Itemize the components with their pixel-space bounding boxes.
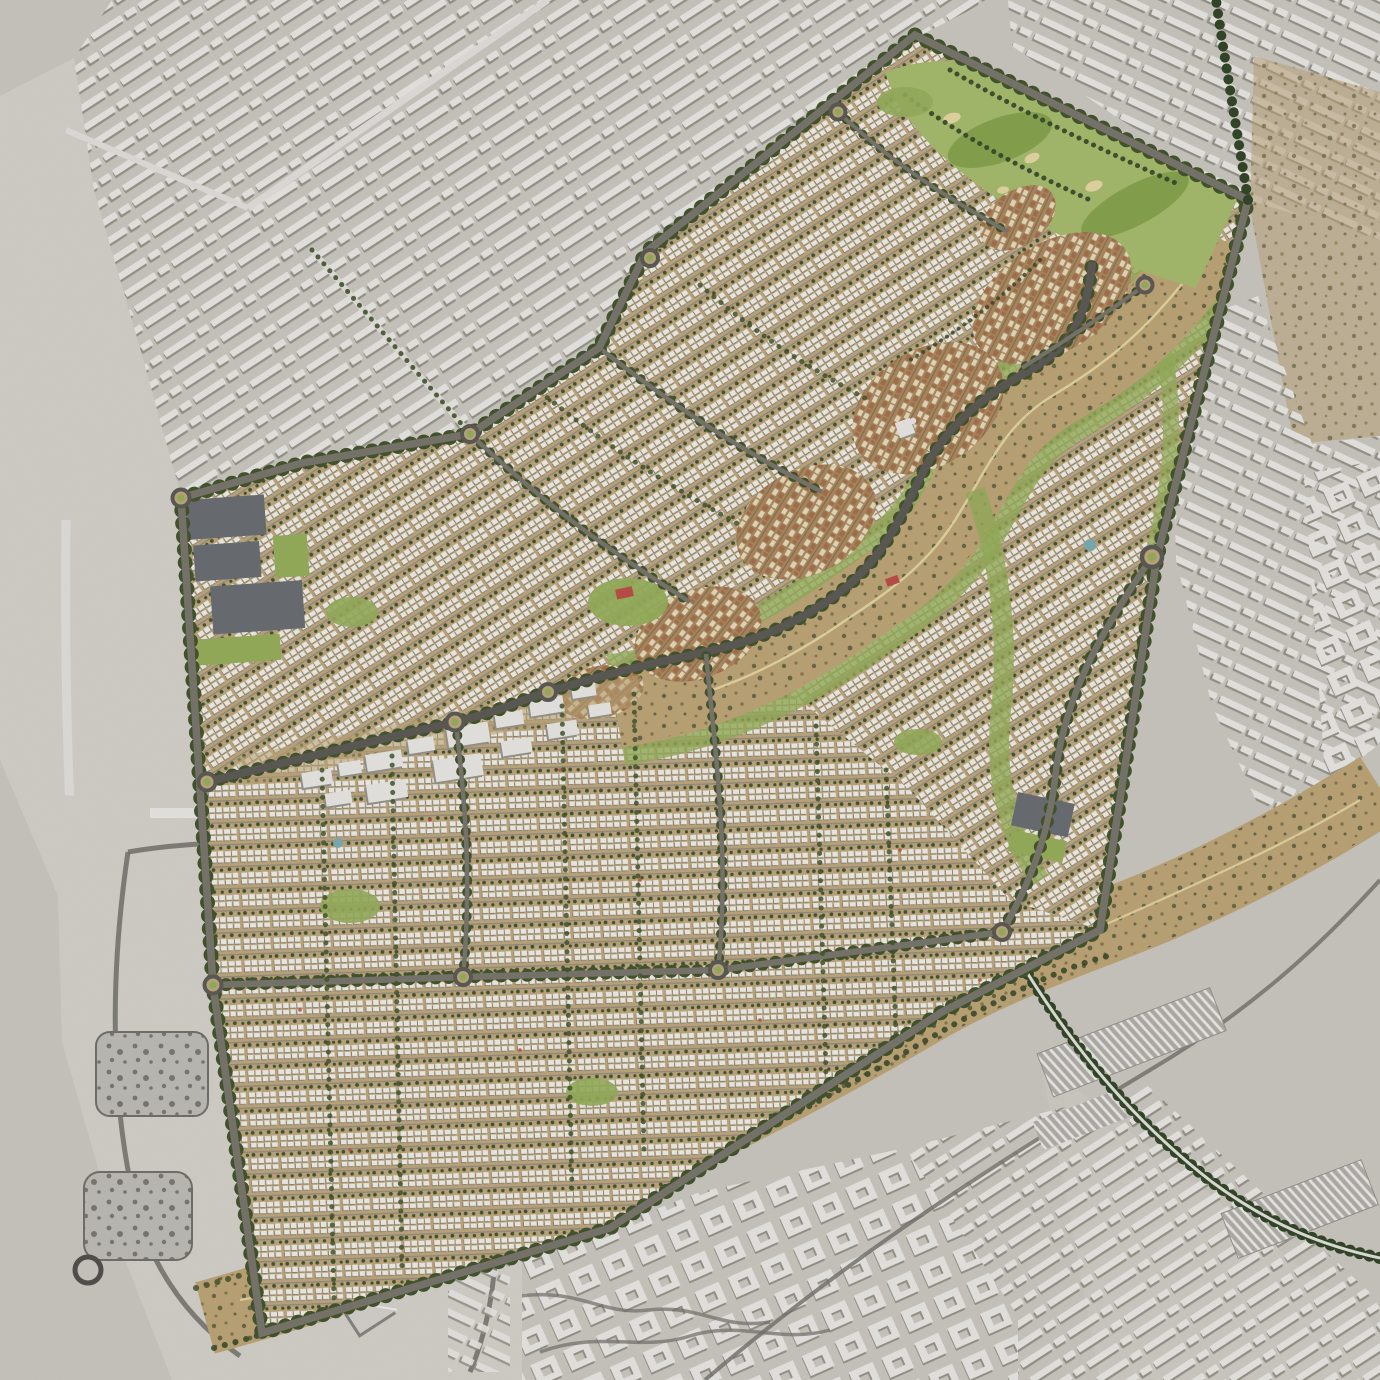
photo-grain-overlay: [0, 0, 1380, 1380]
masterplan-svg: [0, 0, 1380, 1380]
aerial-masterplan-image: [0, 0, 1380, 1380]
